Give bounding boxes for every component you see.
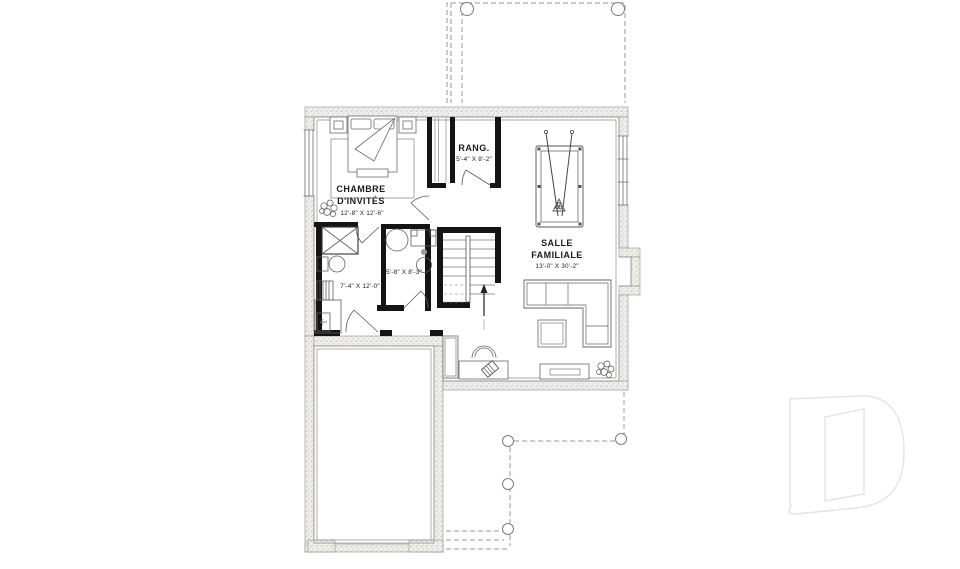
plant-icon: [597, 361, 614, 378]
nightstand-icon: [399, 117, 416, 133]
bench-icon: [357, 169, 388, 177]
room-label-storage: RANG.: [458, 143, 489, 153]
room-dims-guest-bedroom: 12'-8" X 12'-6": [340, 210, 383, 217]
ottoman-icon: [538, 320, 566, 347]
tv-console-icon: [540, 364, 589, 379]
deck-post-icon: [461, 3, 474, 16]
watermark-logo: [789, 396, 904, 514]
drain-icon: [421, 249, 427, 255]
desk-area: [443, 336, 508, 379]
room-dims-laundry: 7'-4" X 12'-0": [340, 283, 380, 290]
room-label-guest-bedroom: CHAMBRE: [336, 184, 385, 194]
window: [304, 130, 315, 196]
pool-table-icon: [536, 130, 583, 227]
lower-deck-outline: [446, 392, 624, 549]
sofa-icon: [524, 280, 611, 347]
deck-post-icon: [612, 3, 625, 16]
closet-shelf-lines: [435, 118, 446, 182]
window: [618, 136, 629, 205]
plant-icon: [320, 200, 338, 217]
room-dims-family-room: 13'-0" X 30'-2": [535, 263, 578, 270]
room-dims-storage: 5'-4" X 8'-2": [456, 156, 492, 163]
room-label-family-room-2: FAMILIALE: [531, 250, 583, 260]
deck-post-icon: [503, 524, 514, 535]
room-dims-bathroom: 5'-8" X 8'-3": [386, 269, 422, 276]
room-label-family-room: SALLE: [541, 238, 573, 248]
floor-plan-page: CHAMBRE D'INVITÉS 12'-8" X 12'-6" RANG. …: [0, 0, 960, 569]
deck-post-icon: [503, 479, 514, 490]
nightstand-icon: [330, 117, 347, 133]
deck-post-icon: [616, 434, 627, 445]
deck-posts: [503, 434, 627, 535]
deck-post-icon: [503, 436, 514, 447]
room-label-guest-bedroom-2: D'INVITÉS: [337, 196, 385, 206]
upper-deck-outline: [447, 3, 625, 103]
chair-icon: [472, 346, 496, 358]
stairs-icon: [443, 236, 495, 330]
corner-sink-icon: [386, 229, 408, 251]
shower-closet-icon: [322, 227, 358, 254]
vanity-icon: [411, 230, 436, 246]
floor-plan-drawing: CHAMBRE D'INVITÉS 12'-8" X 12'-6" RANG. …: [0, 0, 960, 569]
